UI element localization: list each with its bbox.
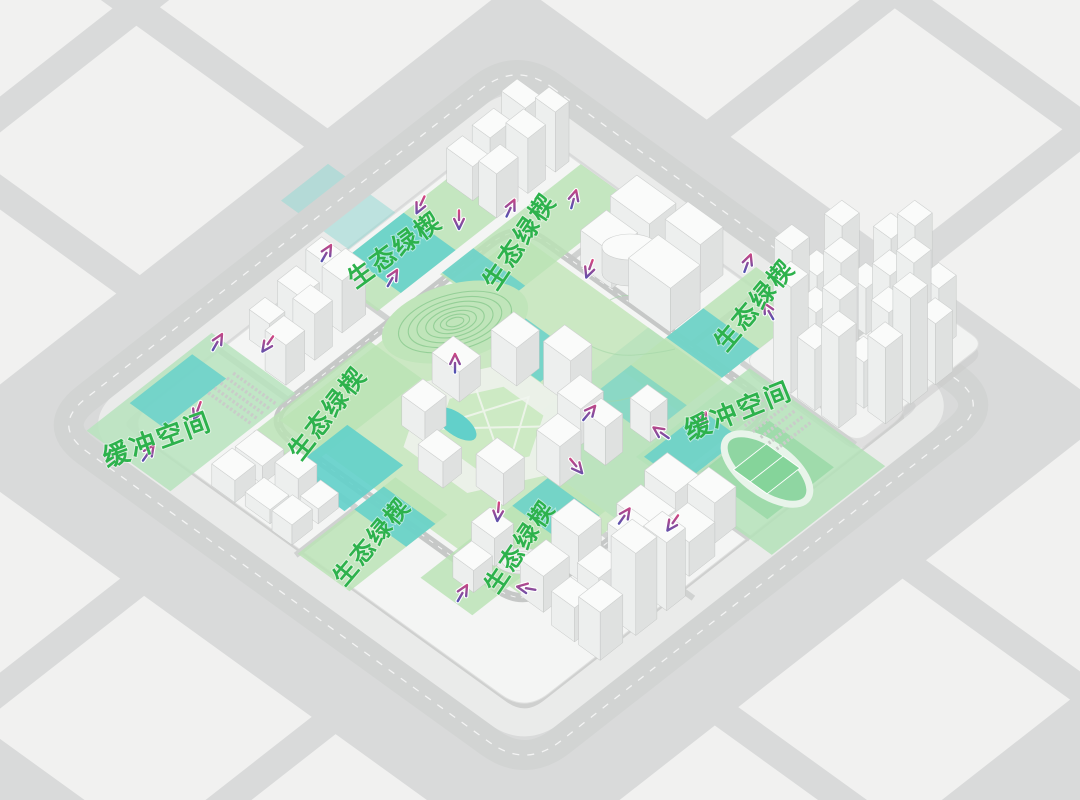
masterplan-diagram: 生态绿楔生态绿楔生态绿楔生态绿楔缓冲空间缓冲空间生态绿楔生态绿楔 bbox=[0, 0, 1080, 800]
building bbox=[868, 335, 886, 424]
building bbox=[821, 324, 839, 428]
masterplan-scene: 生态绿楔生态绿楔生态绿楔生态绿楔缓冲空间缓冲空间生态绿楔生态绿楔 bbox=[0, 0, 1080, 800]
